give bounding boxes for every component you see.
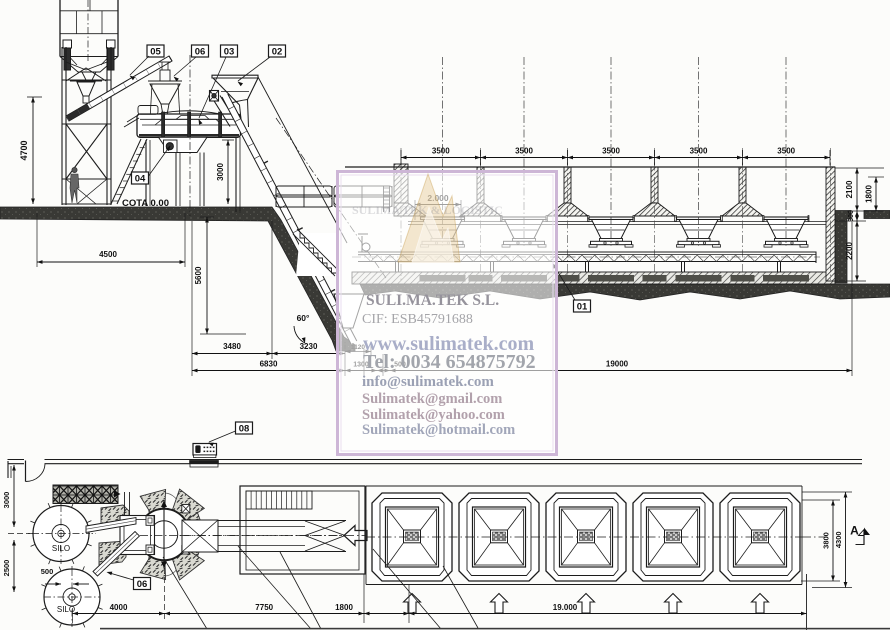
svg-text:3500: 3500	[777, 147, 795, 156]
svg-text:5600: 5600	[194, 266, 203, 284]
svg-text:06: 06	[137, 579, 148, 590]
svg-text:4300: 4300	[834, 531, 843, 548]
svg-text:1800: 1800	[335, 603, 353, 612]
svg-text:19.000: 19.000	[553, 603, 578, 612]
svg-text:60°: 60°	[297, 313, 310, 323]
svg-text:2200: 2200	[845, 242, 854, 260]
svg-text:COTA 0.00: COTA 0.00	[122, 198, 169, 209]
svg-text:6830: 6830	[260, 360, 278, 369]
svg-text:3500: 3500	[432, 147, 450, 156]
svg-text:19000: 19000	[606, 360, 629, 369]
svg-text:SULI.MA.TEK S.L.: SULI.MA.TEK S.L.	[366, 292, 499, 309]
svg-text:3480: 3480	[223, 342, 241, 351]
svg-text:Sulimatek@gmail.com: Sulimatek@gmail.com	[362, 391, 502, 407]
svg-text:300: 300	[848, 210, 855, 222]
svg-text:A: A	[850, 524, 859, 538]
svg-text:1800: 1800	[865, 185, 874, 203]
svg-text:4000: 4000	[110, 603, 128, 612]
svg-text:info@sulimatek.com: info@sulimatek.com	[362, 374, 494, 390]
svg-text:01: 01	[577, 301, 588, 312]
svg-text:03: 03	[224, 46, 235, 57]
svg-text:SULIMA TEK & LOGISTIC: SULIMA TEK & LOGISTIC	[352, 203, 503, 217]
svg-text:3000: 3000	[216, 163, 225, 181]
svg-text:7750: 7750	[255, 603, 273, 612]
svg-text:02: 02	[272, 46, 283, 57]
svg-text:500: 500	[41, 567, 54, 576]
svg-text:2500: 2500	[2, 560, 11, 577]
svg-text:2100: 2100	[845, 180, 854, 198]
svg-text:06: 06	[195, 46, 206, 57]
svg-text:CIF: ESB45791688: CIF: ESB45791688	[362, 312, 473, 327]
svg-text:3500: 3500	[515, 147, 533, 156]
svg-text:04: 04	[135, 173, 146, 184]
svg-text:Sulimatek@yahoo.com: Sulimatek@yahoo.com	[362, 407, 505, 423]
svg-text:4500: 4500	[99, 250, 117, 259]
svg-text:4700: 4700	[19, 140, 29, 160]
svg-text:Tel: 0034 654875792: Tel: 0034 654875792	[363, 351, 536, 373]
svg-text:3500: 3500	[602, 147, 620, 156]
svg-text:3800: 3800	[822, 532, 831, 549]
svg-text:3230: 3230	[300, 342, 318, 351]
svg-text:SILO: SILO	[52, 544, 70, 553]
svg-text:05: 05	[150, 46, 161, 57]
svg-text:Sulimatek@hotmail.com: Sulimatek@hotmail.com	[362, 422, 515, 438]
svg-text:08: 08	[239, 423, 250, 434]
svg-text:3000: 3000	[2, 492, 11, 509]
svg-text:3500: 3500	[690, 147, 708, 156]
